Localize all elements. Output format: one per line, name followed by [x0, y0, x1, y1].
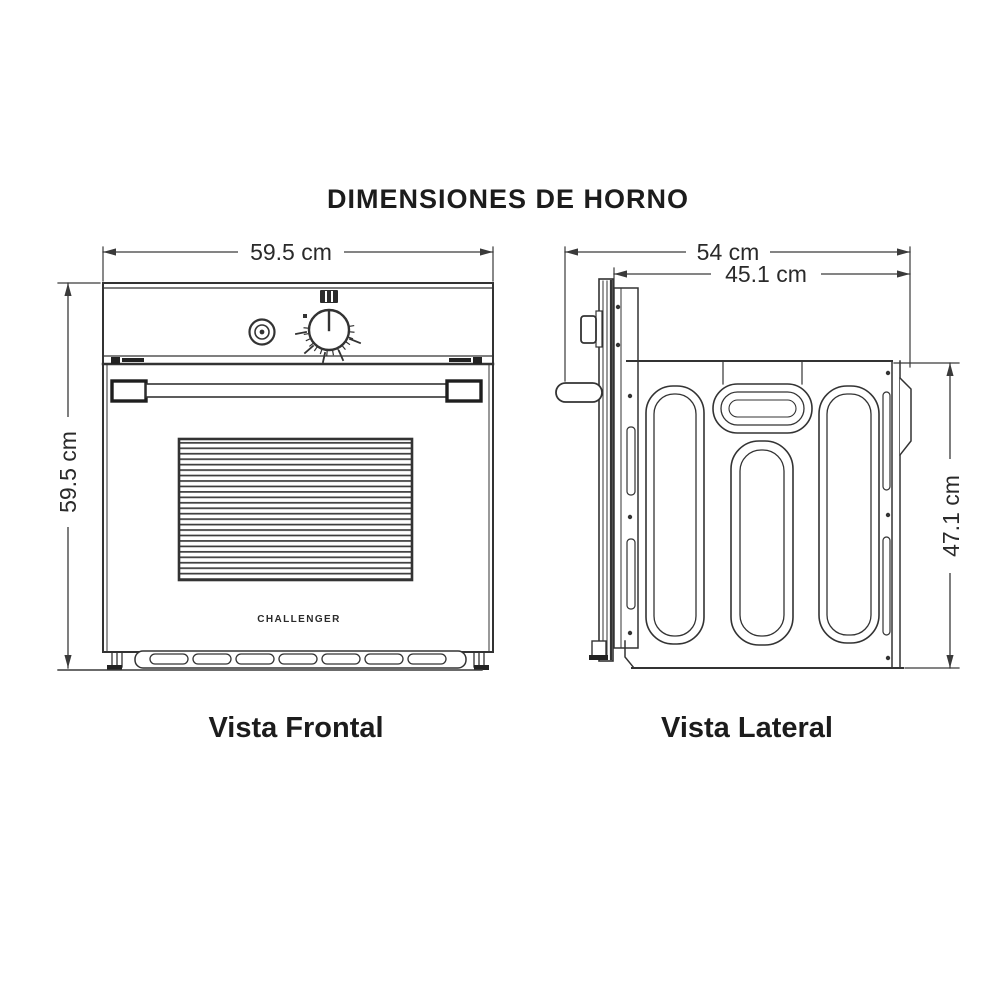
- side-view-drawing: 54 cm 45.1 cm: [556, 239, 964, 744]
- side-body: [625, 361, 911, 668]
- page-title: DIMENSIONES DE HORNO: [327, 184, 689, 214]
- side-view-caption: Vista Lateral: [661, 712, 833, 744]
- front-height-dimension: 59.5 cm: [55, 283, 100, 668]
- side-top-emboss: [713, 361, 812, 433]
- front-view-caption: Vista Frontal: [208, 712, 383, 744]
- front-width-dimension: 59.5 cm: [103, 239, 493, 281]
- rear-bracket: [900, 378, 911, 455]
- diagram-svg: DIMENSIONES DE HORNO 59.5 cm 59.5 cm: [0, 0, 1000, 1000]
- front-view-drawing: 59.5 cm 59.5 cm: [55, 239, 493, 744]
- oven-dimensions-diagram: DIMENSIONES DE HORNO 59.5 cm 59.5 cm: [0, 0, 1000, 1000]
- oven-window: [179, 439, 412, 580]
- front-height-dimension-label: 59.5 cm: [55, 431, 81, 513]
- brand-logo-text: CHALLENGER: [257, 614, 340, 625]
- side-body-depth-dimension: 45.1 cm: [614, 261, 910, 291]
- side-body-height-dimension-label: 47.1 cm: [938, 475, 964, 557]
- bottom-vent: [135, 651, 466, 668]
- indicator-light-icon: [250, 320, 275, 345]
- side-knob-profile: [581, 311, 602, 347]
- side-body-depth-dimension-label: 45.1 cm: [725, 261, 807, 287]
- side-handle-profile: [556, 383, 602, 402]
- grill-mode-icon: [320, 290, 338, 303]
- front-width-dimension-label: 59.5 cm: [250, 239, 332, 265]
- side-front-frame: [614, 288, 638, 648]
